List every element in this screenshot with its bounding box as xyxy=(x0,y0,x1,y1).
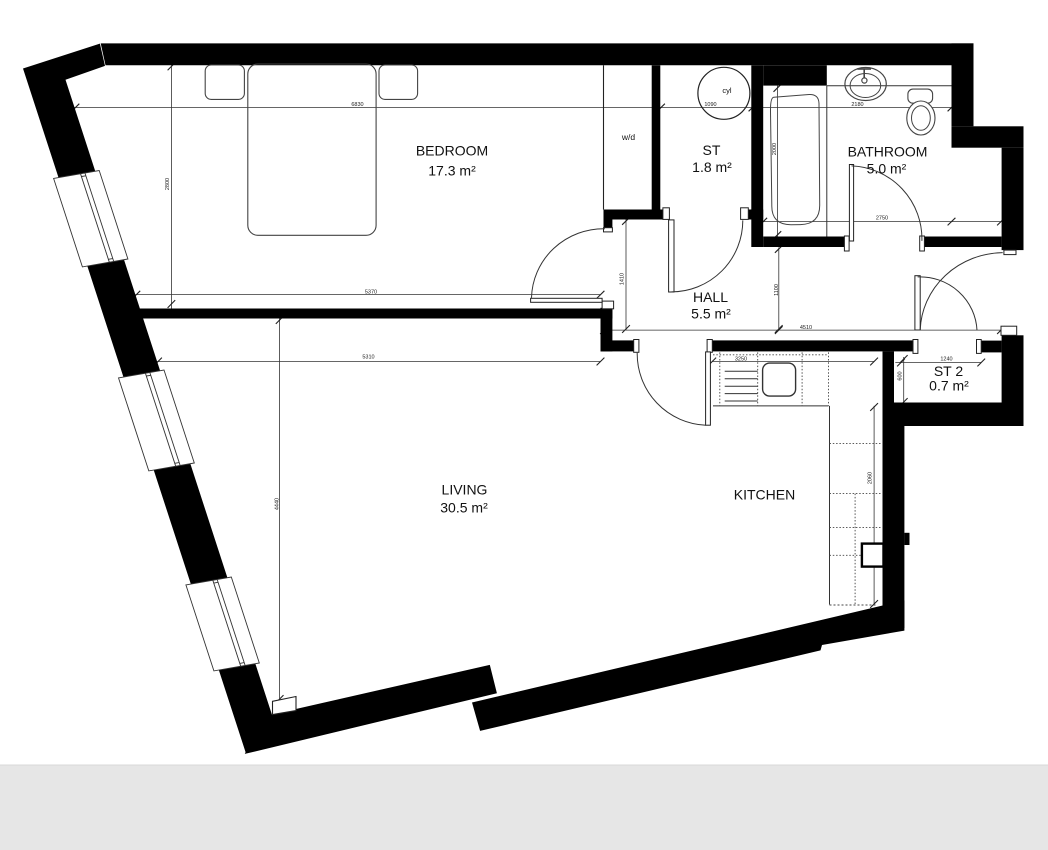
svg-text:5.5 m²: 5.5 m² xyxy=(691,306,731,322)
svg-text:1410: 1410 xyxy=(619,273,625,285)
svg-text:cyl: cyl xyxy=(722,86,732,95)
svg-text:BATHROOM: BATHROOM xyxy=(848,144,928,160)
svg-text:2000: 2000 xyxy=(772,143,778,155)
svg-text:4440: 4440 xyxy=(274,498,280,510)
svg-text:5370: 5370 xyxy=(365,289,377,295)
svg-text:1090: 1090 xyxy=(704,102,716,108)
svg-text:2180: 2180 xyxy=(851,102,863,108)
svg-text:BEDROOM: BEDROOM xyxy=(416,143,488,159)
svg-text:0.7 m²: 0.7 m² xyxy=(929,378,969,394)
svg-text:ST: ST xyxy=(703,142,721,158)
svg-text:17.3 m²: 17.3 m² xyxy=(428,163,476,179)
svg-text:5310: 5310 xyxy=(362,354,374,360)
svg-text:1.8 m²: 1.8 m² xyxy=(692,159,732,175)
svg-text:w/d: w/d xyxy=(621,132,636,142)
svg-text:600: 600 xyxy=(897,371,903,380)
svg-text:LIVING: LIVING xyxy=(442,482,488,498)
svg-text:2750: 2750 xyxy=(876,215,888,221)
svg-text:1240: 1240 xyxy=(940,356,952,362)
svg-text:HALL: HALL xyxy=(693,289,728,305)
svg-text:4510: 4510 xyxy=(800,325,812,331)
svg-text:1100: 1100 xyxy=(774,284,780,296)
svg-text:30.5 m²: 30.5 m² xyxy=(440,500,488,516)
svg-text:5.0 m²: 5.0 m² xyxy=(867,161,907,177)
svg-text:KITCHEN: KITCHEN xyxy=(734,487,795,503)
svg-text:3250: 3250 xyxy=(735,356,747,362)
svg-text:2800: 2800 xyxy=(165,178,171,190)
svg-text:6830: 6830 xyxy=(351,102,363,108)
svg-text:2060: 2060 xyxy=(867,472,873,484)
